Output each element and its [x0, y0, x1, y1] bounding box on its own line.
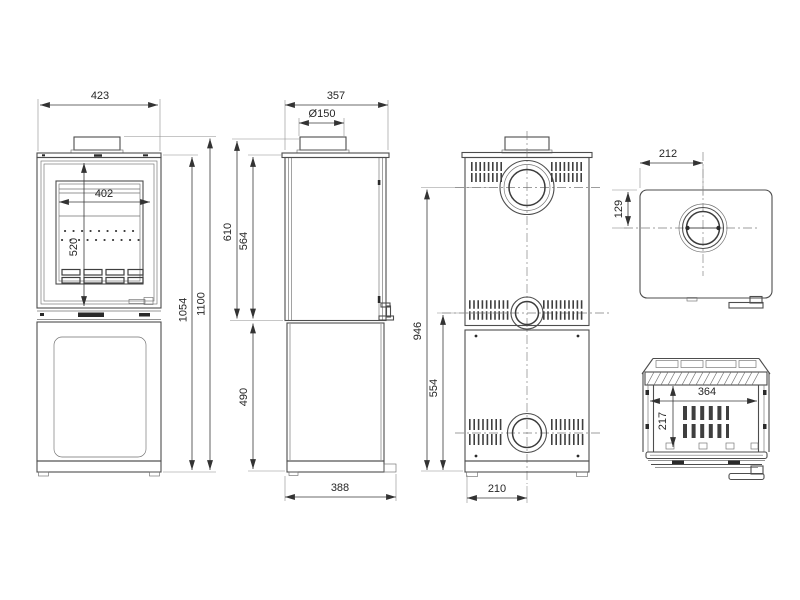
side-upper-height-label: 564: [238, 232, 250, 250]
firebox-air-slots: [683, 413, 729, 431]
side-flue-diameter-label: Ø150: [309, 108, 336, 120]
front-glass-width-label: 402: [95, 188, 113, 200]
front-width-label: 423: [91, 90, 109, 102]
firebox-height-label: 217: [657, 412, 669, 430]
firebox-door-handle: [729, 466, 764, 480]
side-base-lip: [384, 464, 396, 472]
front-pedestal: [37, 322, 161, 461]
side-base-depth-label: 388: [331, 482, 349, 494]
front-body-height-label: 1054: [178, 298, 190, 322]
side-view: 357 Ø150 610 564 490 388: [222, 90, 396, 501]
rear-outlet-height-label: 554: [428, 379, 440, 397]
front-flue-collar: [74, 137, 120, 150]
top-offset-x-label: 212: [659, 148, 677, 160]
firebox-view: 364 217: [642, 359, 770, 480]
front-total-height-label: 1100: [196, 292, 208, 316]
stove-dimension-drawing: 423 402 520 1054 1100: [0, 0, 800, 600]
rear-flue-height-label: 946: [412, 322, 424, 340]
firebox-width-label: 364: [698, 386, 716, 398]
top-offset-y-label: 129: [613, 200, 625, 218]
side-door-handle: [379, 303, 394, 320]
top-dimensions: 212 129: [612, 148, 703, 228]
rear-view: 946 554 210: [412, 131, 610, 503]
rear-offset-label: 210: [488, 483, 506, 495]
side-flue-collar: [300, 137, 346, 150]
firebox-hatching: [647, 372, 759, 385]
side-dimensions: 357 Ø150 610 564 490 388: [222, 90, 396, 501]
firebox-clips: [666, 443, 758, 449]
technical-drawing-page: 423 402 520 1054 1100: [0, 0, 800, 600]
side-pedestal-height-label: 490: [238, 388, 250, 406]
rear-dimensions: 946 554 210: [412, 188, 527, 504]
top-view: 212 129: [612, 148, 772, 308]
front-view: 423 402 520 1054 1100: [37, 90, 216, 476]
front-pedestal-panel: [54, 337, 146, 457]
side-collar-height-label: 610: [222, 223, 234, 241]
side-stove-body: [285, 158, 386, 321]
side-pedestal: [287, 323, 384, 461]
front-door-height-label: 520: [68, 238, 80, 256]
side-depth-label: 357: [327, 90, 345, 102]
firebox-baffle-segments: [656, 361, 756, 368]
